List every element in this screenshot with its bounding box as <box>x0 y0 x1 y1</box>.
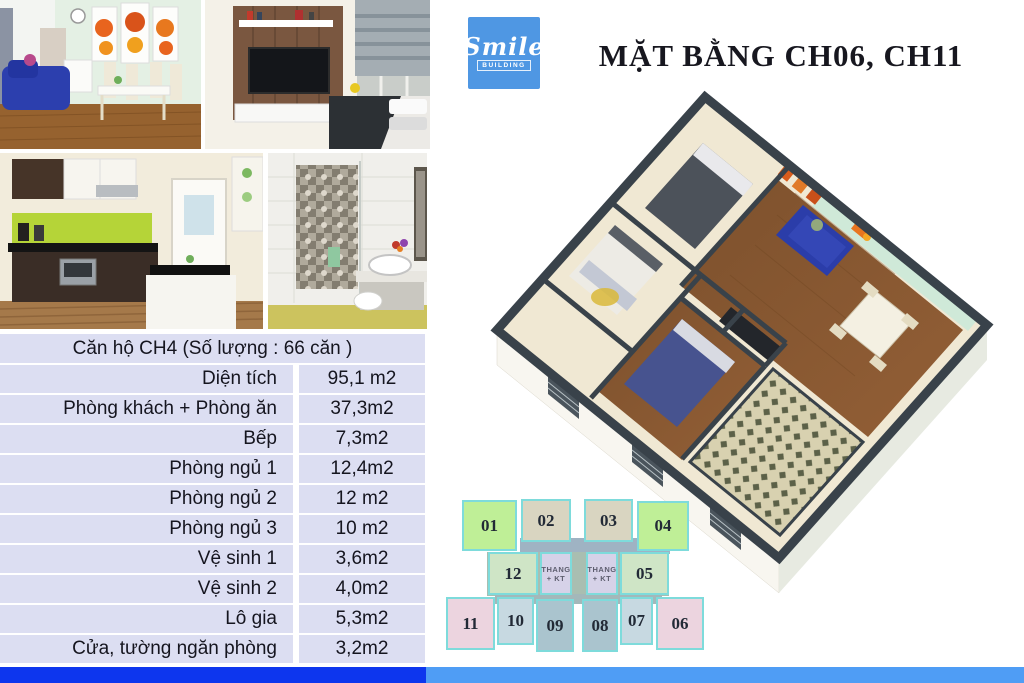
spec-value: 95,1 m2 <box>299 365 425 393</box>
table-row: Vệ sinh 1 3,6m2 <box>0 545 425 573</box>
table-row: Bếp 7,3m2 <box>0 425 425 453</box>
table-row: Phòng ngủ 2 12 m2 <box>0 485 425 513</box>
table-row: Vệ sinh 2 4,0m2 <box>0 575 425 603</box>
stair-core-cell: THANG + KT <box>586 552 618 595</box>
unit-cell-06: 06 <box>656 597 704 650</box>
footer-bar-left <box>0 667 426 683</box>
spec-value: 5,3m2 <box>299 605 425 633</box>
bedroom-tv-photo <box>205 0 430 149</box>
unit-cell-07: 07 <box>620 597 653 645</box>
stair-label-line1: THANG <box>587 565 616 574</box>
spec-label: Phòng ngủ 1 <box>0 455 293 483</box>
bathroom-illustration <box>268 153 427 329</box>
spec-value: 12 m2 <box>299 485 425 513</box>
spec-table-header: Căn hộ CH4 (Số lượng : 66 căn ) <box>0 334 425 363</box>
spec-value: 3,2m2 <box>299 635 425 663</box>
unit-cell-03: 03 <box>584 499 633 542</box>
living-dining-room-illustration <box>0 0 201 149</box>
spec-value: 4,0m2 <box>299 575 425 603</box>
spec-label: Cửa, tường ngăn phòng <box>0 635 293 663</box>
table-row: Lô gia 5,3m2 <box>0 605 425 633</box>
logo-wordmark: Smile <box>463 36 544 58</box>
spec-value: 10 m2 <box>299 515 425 543</box>
spec-label: Vệ sinh 1 <box>0 545 293 573</box>
unit-cell-01: 01 <box>462 500 517 551</box>
stair-label-line2: + KT <box>593 574 611 583</box>
unit-cell-10: 10 <box>497 597 534 645</box>
stair-label-line1: THANG <box>541 565 570 574</box>
table-row: Phòng khách + Phòng ăn 37,3m2 <box>0 395 425 423</box>
spec-value: 12,4m2 <box>299 455 425 483</box>
living-dining-room-photo <box>0 0 201 149</box>
smile-building-logo: Smile BUILDING <box>468 17 540 89</box>
spec-label: Lô gia <box>0 605 293 633</box>
bathroom-photo <box>268 153 427 329</box>
footer-bar-right <box>426 667 1024 683</box>
table-row: Phòng ngủ 1 12,4m2 <box>0 455 425 483</box>
brochure-page: Smile BUILDING MẶT BẰNG CH06, CH11 <box>0 0 1024 683</box>
spec-label: Vệ sinh 2 <box>0 575 293 603</box>
spec-label: Phòng ngủ 3 <box>0 515 293 543</box>
spec-value: 3,6m2 <box>299 545 425 573</box>
spec-label: Diện tích <box>0 365 293 393</box>
spec-label: Phòng ngủ 2 <box>0 485 293 513</box>
logo-subtitle: BUILDING <box>477 60 530 71</box>
page-title: MẶT BẰNG CH06, CH11 <box>556 38 1006 74</box>
kitchen-photo <box>0 153 263 329</box>
spec-value: 7,3m2 <box>299 425 425 453</box>
unit-cell-09: 09 <box>536 599 574 652</box>
apartment-spec-table: Căn hộ CH4 (Số lượng : 66 căn ) Diện tíc… <box>0 334 425 663</box>
unit-cell-08: 08 <box>582 599 618 652</box>
stair-label-line2: + KT <box>547 574 565 583</box>
unit-cell-12: 12 <box>488 552 538 595</box>
spec-label: Phòng khách + Phòng ăn <box>0 395 293 423</box>
bedroom-tv-illustration <box>205 0 430 149</box>
stair-core-cell: THANG + KT <box>540 552 572 595</box>
spec-label: Bếp <box>0 425 293 453</box>
kitchen-illustration <box>0 153 263 329</box>
unit-cell-05: 05 <box>620 552 669 595</box>
unit-cell-02: 02 <box>521 499 571 542</box>
spec-value: 37,3m2 <box>299 395 425 423</box>
unit-cell-04: 04 <box>637 501 689 551</box>
table-row: Phòng ngủ 3 10 m2 <box>0 515 425 543</box>
table-row: Cửa, tường ngăn phòng 3,2m2 <box>0 635 425 663</box>
unit-cell-11: 11 <box>446 597 495 650</box>
table-row: Diện tích 95,1 m2 <box>0 365 425 393</box>
